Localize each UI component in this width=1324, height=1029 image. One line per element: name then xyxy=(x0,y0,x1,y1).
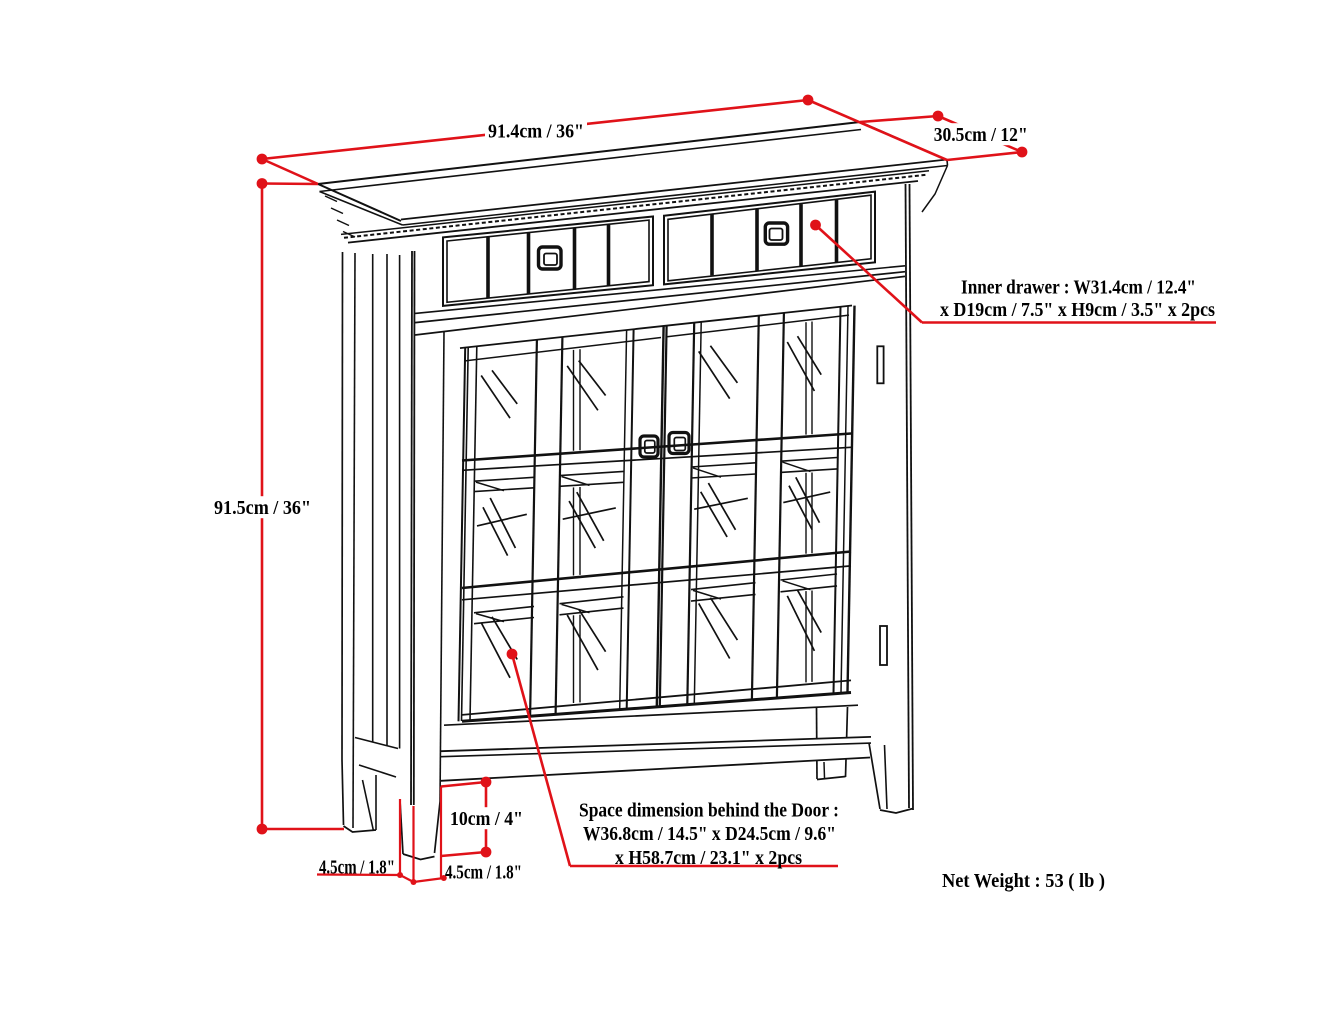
svg-text:91.4cm / 36": 91.4cm / 36" xyxy=(488,121,584,143)
svg-text:Net Weight : 53 ( lb ): Net Weight : 53 ( lb ) xyxy=(942,870,1105,892)
svg-text:x D19cm / 7.5" x H9cm / 3.5" x: x D19cm / 7.5" x H9cm / 3.5" x 2pcs xyxy=(940,299,1215,321)
svg-text:30.5cm / 12": 30.5cm / 12" xyxy=(934,124,1028,146)
svg-text:4.5cm / 1.8": 4.5cm / 1.8" xyxy=(445,862,522,884)
svg-text:4.5cm / 1.8": 4.5cm / 1.8" xyxy=(319,857,395,879)
svg-text:91.5cm / 36": 91.5cm / 36" xyxy=(214,497,311,519)
svg-text:W36.8cm / 14.5" x D24.5cm / 9.: W36.8cm / 14.5" x D24.5cm / 9.6" xyxy=(583,823,836,845)
svg-text:Inner drawer : W31.4cm / 12.4": Inner drawer : W31.4cm / 12.4" xyxy=(961,277,1196,299)
svg-text:Space dimension behind the Doo: Space dimension behind the Door : xyxy=(579,800,839,822)
svg-text:10cm / 4": 10cm / 4" xyxy=(450,808,523,830)
svg-text:x H58.7cm / 23.1" x 2pcs: x H58.7cm / 23.1" x 2pcs xyxy=(615,847,802,869)
